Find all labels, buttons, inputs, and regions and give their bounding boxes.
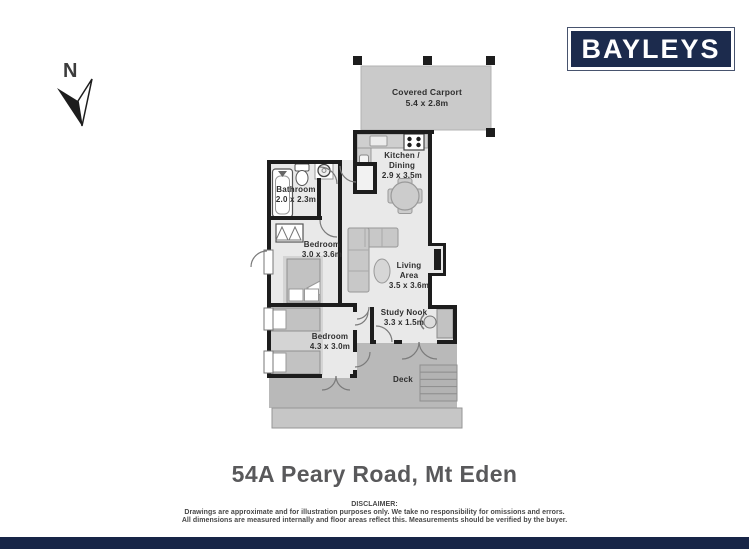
windows [264,250,273,373]
disclaimer: DISCLAIMER: Drawings are approximate and… [0,501,749,525]
footer-bar [0,537,749,549]
room-label-bathroom: Bathroom 2.0 x 2.3m [276,185,316,205]
north-arrow-icon [57,79,92,126]
room-label-bedroom2: Bedroom 4.3 x 3.0m [310,332,350,352]
room-label-bedroom1: Bedroom 3.0 x 3.6m [302,240,342,260]
room-label-carport: Covered Carport 5.4 x 2.8m [392,87,462,109]
wardrobe [276,224,303,242]
desk [437,309,453,338]
floor-plan-page: N BAYLEYS Covered Carport 5.4 x 2.8m Kit… [0,0,749,549]
coffee-table [374,259,390,283]
room-label-living: Living Area 3.5 x 3.6m [389,261,429,291]
bayleys-logo-text: BAYLEYS [571,31,731,67]
disclaimer-heading: DISCLAIMER: [0,501,749,509]
page-title: 54A Peary Road, Mt Eden [0,461,749,488]
disclaimer-line1: Drawings are approximate and for illustr… [0,509,749,517]
room-label-study: Study Nook 3.3 x 1.5m [381,308,427,328]
stove-icon [404,134,424,150]
bayleys-logo: BAYLEYS [567,27,735,71]
stairs [420,365,457,401]
room-label-kitchen: Kitchen / Dining 2.9 x 3.5m [382,151,422,181]
toilet-icon [295,164,309,186]
disclaimer-line2: All dimensions are measured internally a… [0,517,749,525]
compass-north-label: N [63,60,77,83]
room-label-deck: Deck [393,375,413,385]
